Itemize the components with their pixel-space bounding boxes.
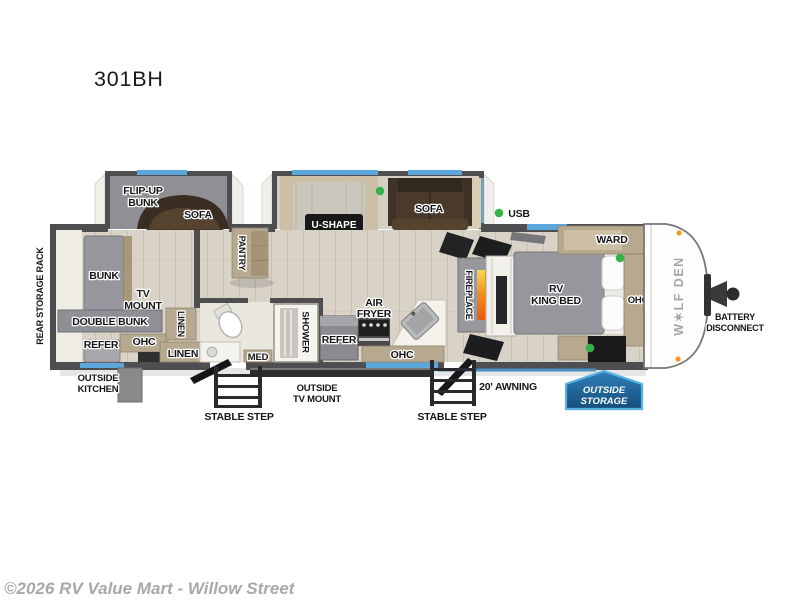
- rear-storage-rack-label: REAR STORAGE RACK: [35, 247, 45, 345]
- tongue-jack: [704, 274, 711, 316]
- marker-light-top: [676, 230, 681, 235]
- slideout-flip-up-bunk: FLIP-UP BUNK SOFA: [95, 170, 243, 239]
- outside-kitchen-door: [118, 368, 142, 402]
- tv-screen: [496, 276, 507, 324]
- outside-tv-mount-label-line2: TV MOUNT: [293, 394, 341, 405]
- outside-tv-mount-label-line1: OUTSIDE: [297, 383, 338, 394]
- copyright-text: ©2026 RV Value Mart - Willow Street: [4, 579, 296, 598]
- nightstand: [558, 336, 588, 360]
- stove: [359, 320, 389, 336]
- page-title: 301BH: [94, 67, 164, 91]
- bunk-label: BUNK: [89, 270, 119, 282]
- king-bed-label-line2: KING BED: [531, 295, 581, 307]
- usb-dot-nightstand: [586, 344, 595, 353]
- bunkroom-wall: [194, 230, 200, 308]
- slide2-window-left: [292, 170, 378, 175]
- brand-logo: W✶LF DEN: [672, 256, 686, 335]
- rear-ohc-label: OHC: [133, 336, 156, 348]
- floorplan-image: 301BH FLIP-UP BUNK SOFA U-SHAPE: [0, 0, 800, 600]
- shower-door: [280, 308, 298, 358]
- double-bunk-label: DOUBLE BUNK: [72, 316, 148, 328]
- pillow-bottom: [602, 296, 624, 330]
- hitch-ball: [727, 288, 740, 301]
- kitchen-window: [366, 362, 438, 368]
- kitchen-ohc-label: OHC: [391, 349, 414, 361]
- kitchen-refer-label: REFER: [322, 334, 357, 346]
- dinette-label-line1: U-SHAPE: [311, 220, 356, 231]
- rear-refer-label: REFER: [84, 339, 119, 351]
- usb-dot-exterior: [495, 209, 504, 218]
- stable-step-right-label: STABLE STEP: [417, 411, 487, 423]
- slide1-window: [137, 170, 187, 175]
- marker-light-bottom: [675, 356, 680, 361]
- dinette-top-edge: [280, 176, 378, 182]
- slide2-window-right: [408, 170, 462, 175]
- bath-sink: [207, 347, 217, 357]
- main-sofa-label: SOFA: [415, 203, 443, 215]
- bath-vanity: [200, 342, 240, 362]
- sofa-end-table: [472, 178, 481, 228]
- king-bed-label-line1: RV: [549, 283, 563, 295]
- flip-up-bunk-label-line1: FLIP-UP: [123, 185, 163, 197]
- pantry-side: [251, 231, 268, 276]
- bathroom: MED SHOWER: [200, 298, 323, 363]
- slide2-right-wall: [484, 174, 494, 228]
- shower-label: SHOWER: [300, 311, 311, 353]
- outside-kitchen-hatch: [80, 363, 124, 368]
- fireplace-flame: [477, 270, 485, 320]
- fireplace-label: FIREPLACE: [464, 270, 474, 319]
- linen-closet-label: LINEN: [176, 311, 186, 337]
- main-sofa-front: [392, 219, 468, 230]
- battery-disconnect-label-line2: DISCONNECT: [706, 323, 764, 333]
- outside-storage-label-line1: OUTSIDE: [583, 385, 626, 396]
- awning-label: 20' AWNING: [479, 381, 537, 393]
- outside-storage-label-line2: STORAGE: [581, 396, 628, 407]
- battery-disconnect-label-line1: BATTERY: [715, 312, 755, 322]
- rear-wall-interior: [56, 230, 82, 362]
- slide2-left-wall: [262, 174, 272, 228]
- air-fryer-label-line2: FRYER: [357, 308, 392, 320]
- linen-cabinet-label: LINEN: [168, 348, 199, 360]
- stable-step-left-label: STABLE STEP: [204, 411, 274, 423]
- med-label: MED: [248, 352, 269, 363]
- main-sofa-back: [388, 178, 472, 194]
- tv-mount-label-line1: TV: [136, 288, 149, 300]
- ward-label: WARD: [596, 234, 628, 246]
- usb-dot-dinette: [376, 187, 384, 195]
- outside-kitchen-label-line2: KITCHEN: [78, 384, 119, 395]
- rear-sofa-label: SOFA: [184, 209, 212, 221]
- flip-up-bunk-label-line2: BUNK: [128, 197, 158, 209]
- slide1-left-wall: [95, 174, 105, 228]
- usb-label: USB: [508, 208, 530, 220]
- pantry-label: PANTRY: [237, 236, 247, 271]
- usb-dot-ward: [616, 254, 625, 263]
- outside-kitchen-label-line1: OUTSIDE: [78, 373, 119, 384]
